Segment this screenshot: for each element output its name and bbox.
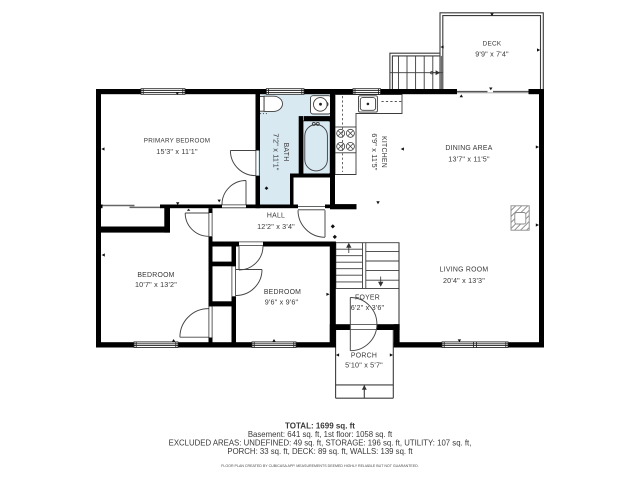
svg-text:9'6" x 9'6": 9'6" x 9'6" — [265, 297, 299, 306]
svg-text:15'3" x 11'1": 15'3" x 11'1" — [156, 147, 198, 156]
svg-text:20'4" x 13'3": 20'4" x 13'3" — [443, 276, 485, 285]
svg-text:DINING AREA: DINING AREA — [445, 145, 492, 152]
svg-text:BEDROOM: BEDROOM — [137, 272, 174, 279]
svg-text:PRIMARY BEDROOM: PRIMARY BEDROOM — [144, 138, 211, 145]
svg-text:12'2" x 3'4": 12'2" x 3'4" — [257, 222, 295, 231]
svg-text:HALL: HALL — [267, 213, 285, 220]
svg-text:7'2" x 11'1": 7'2" x 11'1" — [272, 133, 281, 171]
svg-text:BATH: BATH — [282, 143, 289, 162]
svg-text:6'2" x 3'6": 6'2" x 3'6" — [351, 303, 385, 312]
svg-text:13'7" x 11'5": 13'7" x 11'5" — [448, 155, 490, 164]
svg-text:KITCHEN: KITCHEN — [380, 136, 387, 168]
svg-text:10'7" x 13'2": 10'7" x 13'2" — [135, 280, 177, 289]
svg-text:PORCH: PORCH — [351, 353, 377, 360]
svg-text:PORCH: 33 sq. ft, DECK: 89 sq.: PORCH: 33 sq. ft, DECK: 89 sq. ft, WALLS… — [227, 447, 413, 456]
svg-text:5'10" x 5'7": 5'10" x 5'7" — [345, 361, 383, 370]
svg-text:9'9" x 7'4": 9'9" x 7'4" — [475, 50, 509, 59]
svg-text:6'9" x 11'5": 6'9" x 11'5" — [370, 133, 379, 171]
svg-text:DECK: DECK — [483, 41, 502, 48]
svg-text:LIVING ROOM: LIVING ROOM — [440, 267, 489, 274]
svg-text:FLOOR PLAN CREATED BY CUBICASA: FLOOR PLAN CREATED BY CUBICASA APP. MEAS… — [221, 464, 419, 468]
svg-text:BEDROOM: BEDROOM — [264, 289, 301, 296]
svg-text:FOYER: FOYER — [355, 295, 380, 302]
